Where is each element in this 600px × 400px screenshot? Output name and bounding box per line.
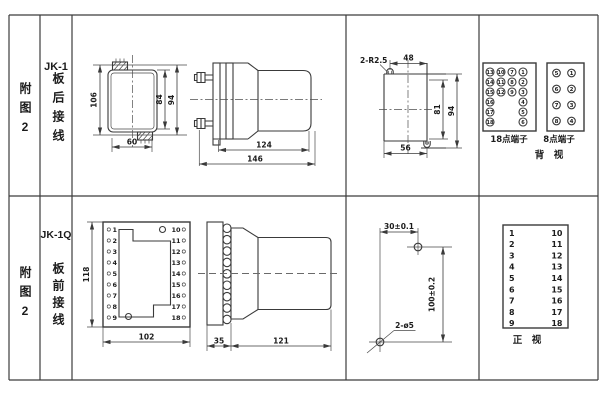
- drawing-sheet: 106 84 94 60 124 146 2-R2.5 48 81: [0, 0, 600, 400]
- terminal-number: 5: [555, 71, 559, 77]
- front-terminal-table: 110 211 312 413 514 615 716 817 918 正 视: [503, 225, 568, 346]
- block8-label: 8点端子: [543, 134, 575, 145]
- model-label-row2: JK-1Q: [39, 229, 73, 241]
- terminal-dot: [182, 250, 185, 253]
- table-cell: 18: [551, 319, 563, 328]
- terminal-bump: [223, 224, 231, 233]
- terminal-number: 2: [570, 87, 574, 93]
- table-cell: 7: [509, 297, 515, 306]
- dim-35: 35: [214, 337, 224, 346]
- terminal-number: 13: [487, 70, 494, 76]
- drawing-canvas: 106 84 94 60 124 146 2-R2.5 48 81: [0, 0, 600, 400]
- extension-lines: [93, 65, 187, 152]
- dim-94c: 94: [447, 106, 456, 116]
- terminal-number: 1: [521, 70, 525, 76]
- table-cell: 1: [509, 229, 515, 238]
- terminal-number: 5: [521, 110, 525, 116]
- dim-146: 146: [247, 155, 263, 164]
- terminal-bump: [223, 315, 231, 324]
- terminal-number: 3: [113, 248, 118, 256]
- rear-view-label: 背 视: [535, 149, 564, 161]
- terminal-number: 7: [113, 292, 118, 300]
- terminal-number: 4: [570, 119, 574, 125]
- table-cell: 11: [551, 240, 563, 249]
- terminal-number: 9: [510, 90, 514, 96]
- terminal-number: 11: [498, 80, 505, 86]
- jk1q-front-view: 1 2 3 4 5 6 7 8 9 10 11 12 13 14 15 16 1…: [82, 222, 190, 347]
- table-cell: 9: [509, 319, 515, 328]
- rear-terminal-blocks: 13 14 15 16 17 18 10 11 12 7 8 9 1 2 3 4…: [483, 63, 584, 161]
- table-cell: 6: [509, 285, 515, 294]
- dim-100: 100±0.2: [428, 277, 437, 312]
- terminal-number: 3: [521, 90, 525, 96]
- terminal-number: 10: [171, 226, 181, 234]
- terminal-number: 13: [171, 259, 180, 267]
- terminal-number: 18: [171, 314, 181, 322]
- jk1-panel-cutout: 2-R2.5 48 81 94 56: [360, 54, 462, 159]
- jk1-side-view: 124 146: [190, 63, 322, 166]
- dim-84: 84: [155, 94, 164, 104]
- terminal-dot: [107, 305, 110, 308]
- mounting-screw-bottom: [195, 119, 214, 129]
- terminal-number: 14: [487, 80, 494, 86]
- terminal-number: 15: [487, 90, 494, 96]
- jk1q-side-view: 35 121: [198, 222, 340, 351]
- table-cell: 12: [551, 251, 562, 260]
- table-cell: 2: [509, 240, 515, 249]
- table-cell: 16: [551, 297, 563, 306]
- dim-121: 121: [273, 337, 289, 346]
- terminal-number: 18: [487, 120, 494, 126]
- terminal-dot: [182, 283, 185, 286]
- terminal-dot: [107, 239, 110, 242]
- hatch-bottom: [138, 132, 153, 144]
- terminal-number: 16: [171, 292, 181, 300]
- terminal-number: 7: [555, 103, 559, 109]
- dim-56: 56: [400, 144, 410, 153]
- jk1q-drill-pattern: 30±0.1 100±0.2 2-ø5: [367, 222, 452, 353]
- panel-plate: [213, 63, 220, 145]
- terminal-number: 5: [113, 270, 118, 278]
- terminal-number: 17: [171, 303, 180, 311]
- terminal-number: 1: [113, 226, 118, 234]
- terminal-number: 6: [113, 281, 118, 289]
- dim-118: 118: [82, 267, 91, 283]
- table-cell: 14: [551, 274, 563, 283]
- hatch-top: [113, 59, 128, 71]
- terminal-number: 2: [521, 80, 525, 86]
- terminal-number: 15: [171, 281, 181, 289]
- terminal-dot: [182, 228, 185, 231]
- terminal-number: 12: [498, 90, 505, 96]
- dim-48: 48: [403, 54, 413, 63]
- table-cell: 13: [551, 263, 562, 272]
- terminal-number: 4: [521, 100, 525, 106]
- terminal-dot: [107, 316, 110, 319]
- terminal-number: 8: [113, 303, 118, 311]
- terminal-dot: [182, 261, 185, 264]
- terminal-number: 9: [113, 314, 118, 322]
- terminal-bump: [223, 292, 231, 301]
- terminal-dot: [107, 294, 110, 297]
- terminal-number: 6: [521, 120, 525, 126]
- mounting-hole-top: [160, 227, 166, 233]
- relay-body-outline: [119, 230, 171, 318]
- terminal-number: 4: [113, 259, 118, 267]
- terminal-dot: [107, 250, 110, 253]
- terminal-number: 6: [555, 87, 559, 93]
- terminal-number: 11: [171, 237, 181, 245]
- terminal-number: 16: [487, 100, 494, 106]
- terminal-number: 8: [510, 80, 514, 86]
- terminal-number: 10: [498, 70, 505, 76]
- dim-30: 30±0.1: [384, 222, 414, 231]
- dim-124: 124: [256, 141, 272, 150]
- table-cell: 4: [509, 263, 515, 272]
- table-cell: 8: [509, 308, 515, 317]
- terminal-dot: [107, 228, 110, 231]
- terminal-dot: [107, 283, 110, 286]
- terminal-number: 1: [570, 71, 574, 77]
- terminal-dot: [107, 272, 110, 275]
- terminal-number: 3: [570, 103, 574, 109]
- terminal-dot: [182, 305, 185, 308]
- terminal-number: 12: [171, 248, 180, 256]
- slot-ticks: [388, 71, 428, 144]
- terminal-bump: [223, 235, 231, 244]
- dim-60: 60: [127, 138, 137, 147]
- terminal-number: 2: [113, 237, 118, 245]
- slot-leader: [380, 65, 388, 73]
- wiring-label-row1: 板后接线: [50, 72, 67, 148]
- terminal-dot: [182, 272, 185, 275]
- table-cell: 5: [509, 274, 515, 283]
- table-cell: 17: [551, 308, 562, 317]
- terminal-number: 8: [555, 119, 559, 125]
- table-cell: 3: [509, 251, 515, 260]
- block18-label: 18点端子: [490, 134, 528, 145]
- terminal-screw-block-bottom: [138, 132, 153, 140]
- terminal-bump: [223, 258, 231, 267]
- terminal-dot: [182, 239, 185, 242]
- table-cell: 15: [551, 285, 563, 294]
- terminal-number: 14: [171, 270, 181, 278]
- relay-body: [213, 63, 311, 139]
- terminal-dot: [182, 294, 185, 297]
- front-view-label: 正 视: [513, 334, 542, 346]
- table-cell: 10: [551, 229, 563, 238]
- terminal-number: 17: [487, 110, 494, 116]
- extension-lines: [369, 228, 452, 352]
- dim-81: 81: [433, 104, 442, 114]
- mounting-screw-top: [195, 73, 214, 83]
- flange-plate: [226, 63, 233, 139]
- terminal-bump: [223, 247, 231, 256]
- terminal-number: 7: [510, 70, 514, 76]
- hole-label: 2-ø5: [395, 321, 414, 330]
- slot-label: 2-R2.5: [360, 56, 387, 65]
- wiring-label-row2: 板前接线: [50, 262, 67, 330]
- terminal-dot: [182, 316, 185, 319]
- terminal-dot: [107, 261, 110, 264]
- figure-label-row1: 附图2: [17, 82, 34, 141]
- dim-102: 102: [139, 333, 155, 342]
- dim-94: 94: [167, 95, 176, 105]
- terminal-bump: [223, 304, 231, 313]
- terminal-bump: [223, 281, 231, 290]
- dim-106: 106: [90, 92, 99, 108]
- figure-label-row2: 附图2: [17, 266, 34, 325]
- jk1-face-view: 106 84 94 60: [90, 55, 188, 152]
